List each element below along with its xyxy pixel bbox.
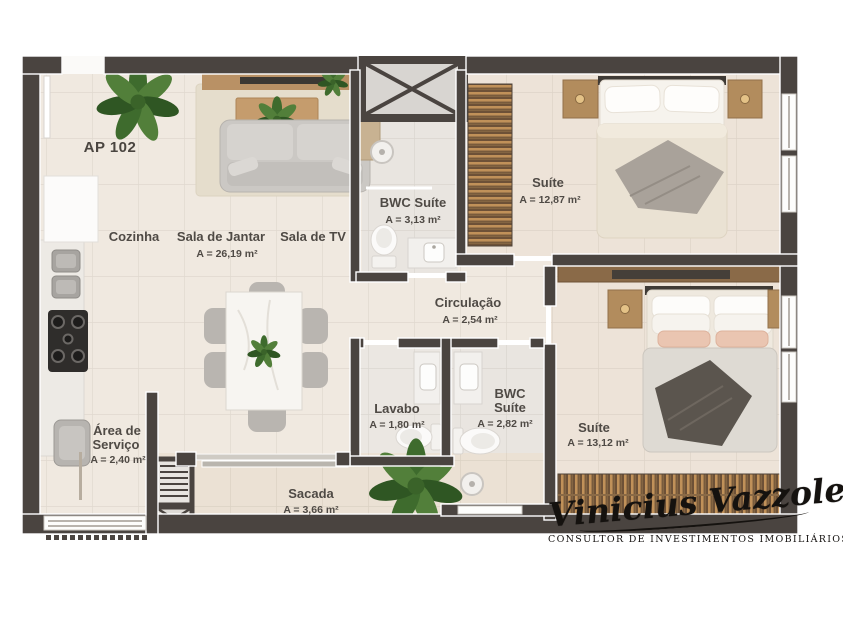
nightstand-left <box>563 80 598 118</box>
washing-machine <box>54 420 90 466</box>
bwc-1-door-leaf[interactable] <box>408 273 446 278</box>
elevator-shaft <box>356 56 468 122</box>
signature-tagline: CONSULTOR DE INVESTIMENTOS IMOBILIÁRIOS <box>548 534 840 545</box>
room-label-bwc-suite-2-line1: BWC <box>494 386 526 401</box>
room-label-bwc-suite-1: BWC Suíte <box>380 195 446 210</box>
nightstand-right <box>728 80 762 118</box>
unit-label: AP 102 <box>84 139 137 156</box>
sliding-door-rail[interactable] <box>202 461 348 467</box>
room-area-bwc-suite-1: A = 3,13 m² <box>385 214 441 226</box>
room-area-sacada: A = 3,66 m² <box>283 504 339 516</box>
room-label-area-de-servico-line2: Serviço <box>93 437 140 452</box>
wardrobe <box>468 84 512 246</box>
entrance-opening[interactable] <box>62 56 104 74</box>
bed <box>597 76 727 238</box>
room-label-area-de-servico-line1: Área de <box>93 423 141 438</box>
room-area-bwc-suite-2: A = 2,82 m² <box>477 418 533 430</box>
service-area-window <box>44 516 146 530</box>
accent-pillow <box>716 331 768 347</box>
suite-2-door-leaf[interactable] <box>546 306 551 344</box>
room-label-cozinha: Cozinha <box>109 229 160 244</box>
toilet <box>453 428 500 454</box>
nightstand-left <box>608 290 642 328</box>
sofa <box>220 120 370 192</box>
lavabo-door-leaf[interactable] <box>364 340 398 345</box>
suite-1-door-leaf[interactable] <box>514 256 552 261</box>
room-area-circulacao: A = 2,54 m² <box>442 314 498 326</box>
broom <box>79 452 82 500</box>
vanity <box>454 352 482 404</box>
sliding-door-rail[interactable] <box>194 454 340 460</box>
room-area-lavabo: A = 1,80 m² <box>369 419 425 431</box>
room-label-sacada: Sacada <box>288 486 334 501</box>
room-label-sala-de-jantar: Sala de Jantar <box>177 229 265 244</box>
bwc-2-door-leaf[interactable] <box>498 340 530 345</box>
cooktop <box>48 310 88 372</box>
room-label-bwc-suite-2-line2: Suíte <box>494 400 526 415</box>
room-area-suite-1: A = 12,87 m² <box>519 194 581 206</box>
nightstand-right <box>768 290 780 328</box>
room-area-area-de-servico: A = 2,40 m² <box>90 454 146 466</box>
room-area-sala-de-jantar: A = 26,19 m² <box>196 248 258 260</box>
accent-pillow <box>658 331 710 347</box>
room-area-suite-2: A = 13,12 m² <box>567 437 629 449</box>
floor-plan-page: AP 102 Cozinha Sala de Jantar A = 26,19 … <box>0 0 843 631</box>
vanity <box>408 238 456 268</box>
room-label-circulacao: Circulação <box>435 295 502 310</box>
vent-dashes <box>46 535 147 540</box>
suite-1-furniture <box>468 76 762 246</box>
realtor-branding: Vinicius Vazzoletti CONSULTOR DE INVESTI… <box>548 486 840 545</box>
bwc-2-window <box>458 506 522 514</box>
room-label-lavabo: Lavabo <box>374 401 420 416</box>
room-label-suite-2: Suíte <box>578 420 610 435</box>
fridge <box>44 176 98 242</box>
tv <box>240 77 326 84</box>
room-label-sala-de-tv: Sala de TV <box>280 229 346 244</box>
toilet <box>371 225 397 268</box>
vanity <box>414 352 440 404</box>
bed <box>643 286 777 452</box>
room-label-suite-1: Suíte <box>532 175 564 190</box>
entrance-door-leaf[interactable] <box>44 76 50 138</box>
